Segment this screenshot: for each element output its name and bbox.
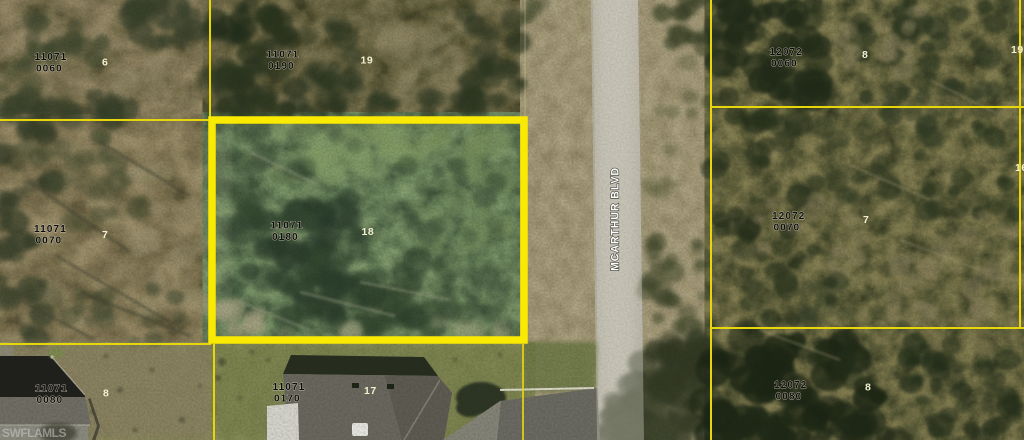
svg-text:11071: 11071	[271, 221, 304, 232]
svg-text:8: 8	[103, 388, 109, 400]
svg-text:11071: 11071	[35, 384, 68, 395]
svg-text:0080: 0080	[776, 391, 803, 402]
svg-text:0190: 0190	[268, 61, 295, 72]
svg-text:19: 19	[1011, 44, 1024, 56]
svg-text:12072: 12072	[772, 211, 805, 222]
svg-text:0080: 0080	[37, 395, 64, 406]
svg-text:11071: 11071	[34, 224, 67, 235]
svg-text:8: 8	[862, 49, 868, 61]
svg-text:19: 19	[361, 55, 374, 67]
svg-text:11071: 11071	[35, 52, 68, 63]
svg-text:16: 16	[1015, 162, 1024, 174]
svg-text:8: 8	[865, 382, 871, 394]
svg-text:18: 18	[362, 226, 375, 238]
svg-text:11071: 11071	[273, 382, 306, 393]
svg-text:SWFLAMLS: SWFLAMLS	[2, 426, 66, 440]
svg-text:MCARTHUR BLVD: MCARTHUR BLVD	[610, 167, 622, 271]
svg-text:0060: 0060	[36, 63, 63, 74]
svg-text:12072: 12072	[770, 47, 803, 58]
svg-text:6: 6	[102, 57, 108, 69]
svg-text:0070: 0070	[774, 222, 801, 233]
svg-text:7: 7	[863, 214, 869, 226]
svg-text:11071: 11071	[267, 50, 300, 61]
svg-text:0060: 0060	[771, 58, 798, 69]
svg-text:12072: 12072	[774, 380, 807, 391]
svg-text:17: 17	[364, 385, 377, 397]
svg-text:0170: 0170	[274, 393, 301, 404]
svg-text:0070: 0070	[36, 235, 63, 246]
svg-text:7: 7	[102, 229, 108, 241]
svg-text:0180: 0180	[272, 232, 299, 243]
